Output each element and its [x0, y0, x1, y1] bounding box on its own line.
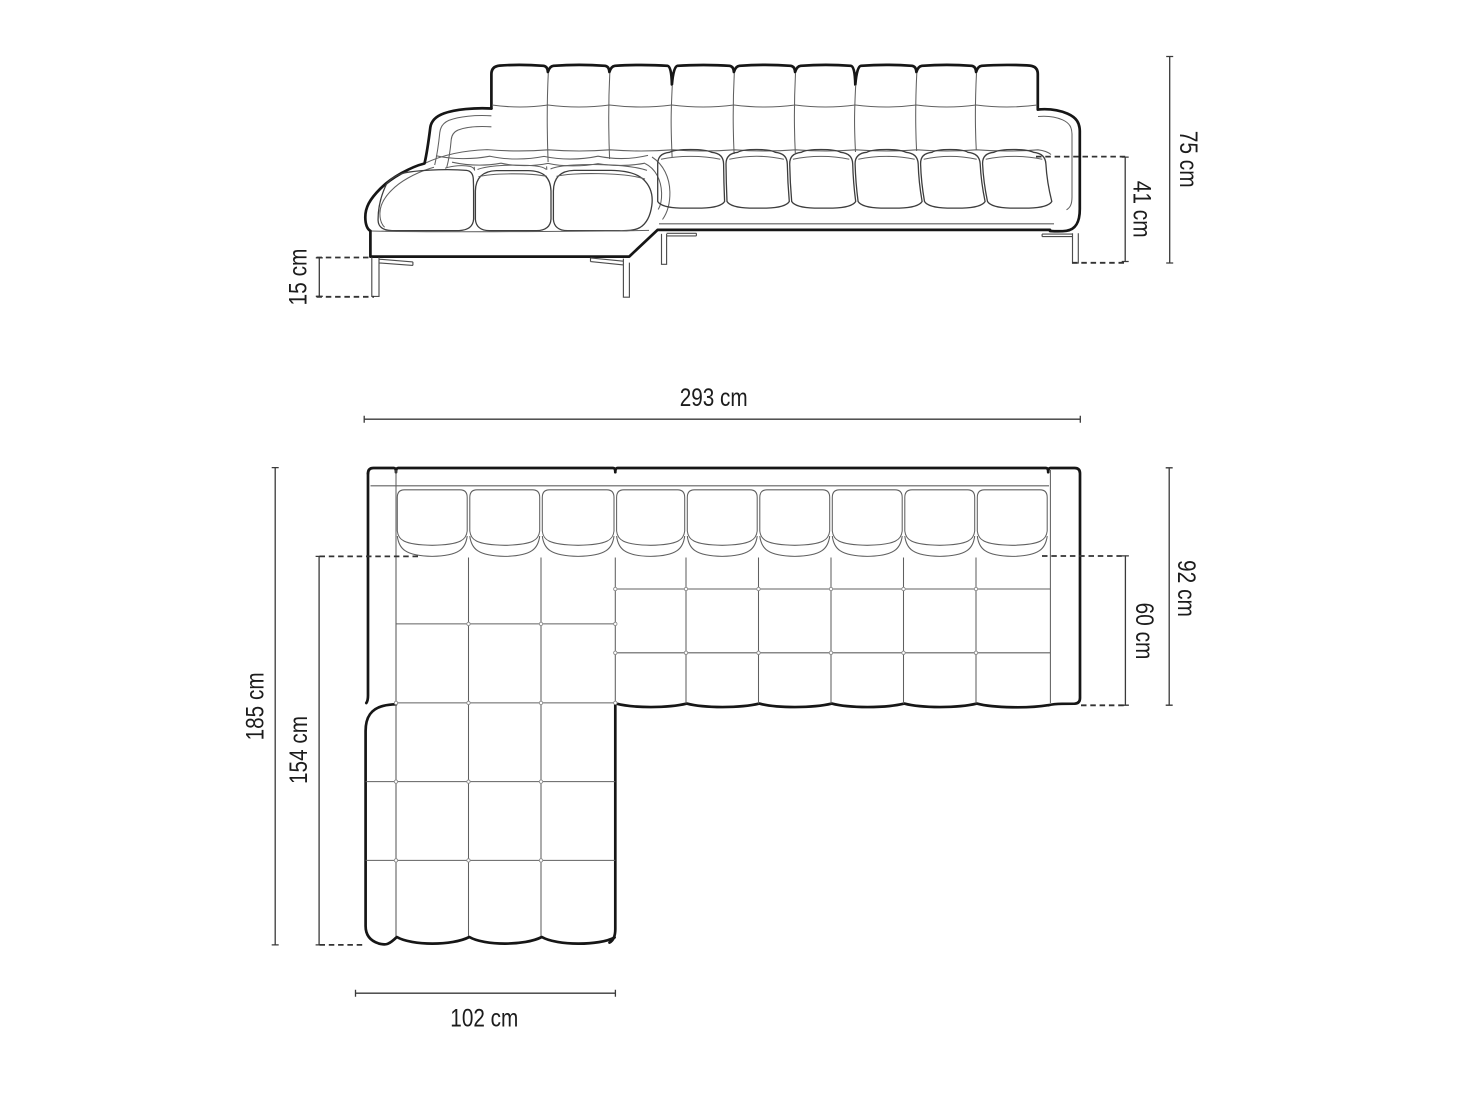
svg-text:15 cm: 15 cm — [285, 249, 313, 306]
svg-text:60 cm: 60 cm — [1130, 603, 1158, 660]
svg-text:92 cm: 92 cm — [1172, 560, 1200, 617]
svg-text:185 cm: 185 cm — [242, 672, 270, 740]
svg-text:41 cm: 41 cm — [1127, 181, 1155, 238]
svg-text:102 cm: 102 cm — [450, 1005, 518, 1033]
svg-text:293 cm: 293 cm — [680, 384, 748, 412]
svg-text:75 cm: 75 cm — [1174, 131, 1202, 188]
svg-text:154 cm: 154 cm — [285, 716, 313, 784]
